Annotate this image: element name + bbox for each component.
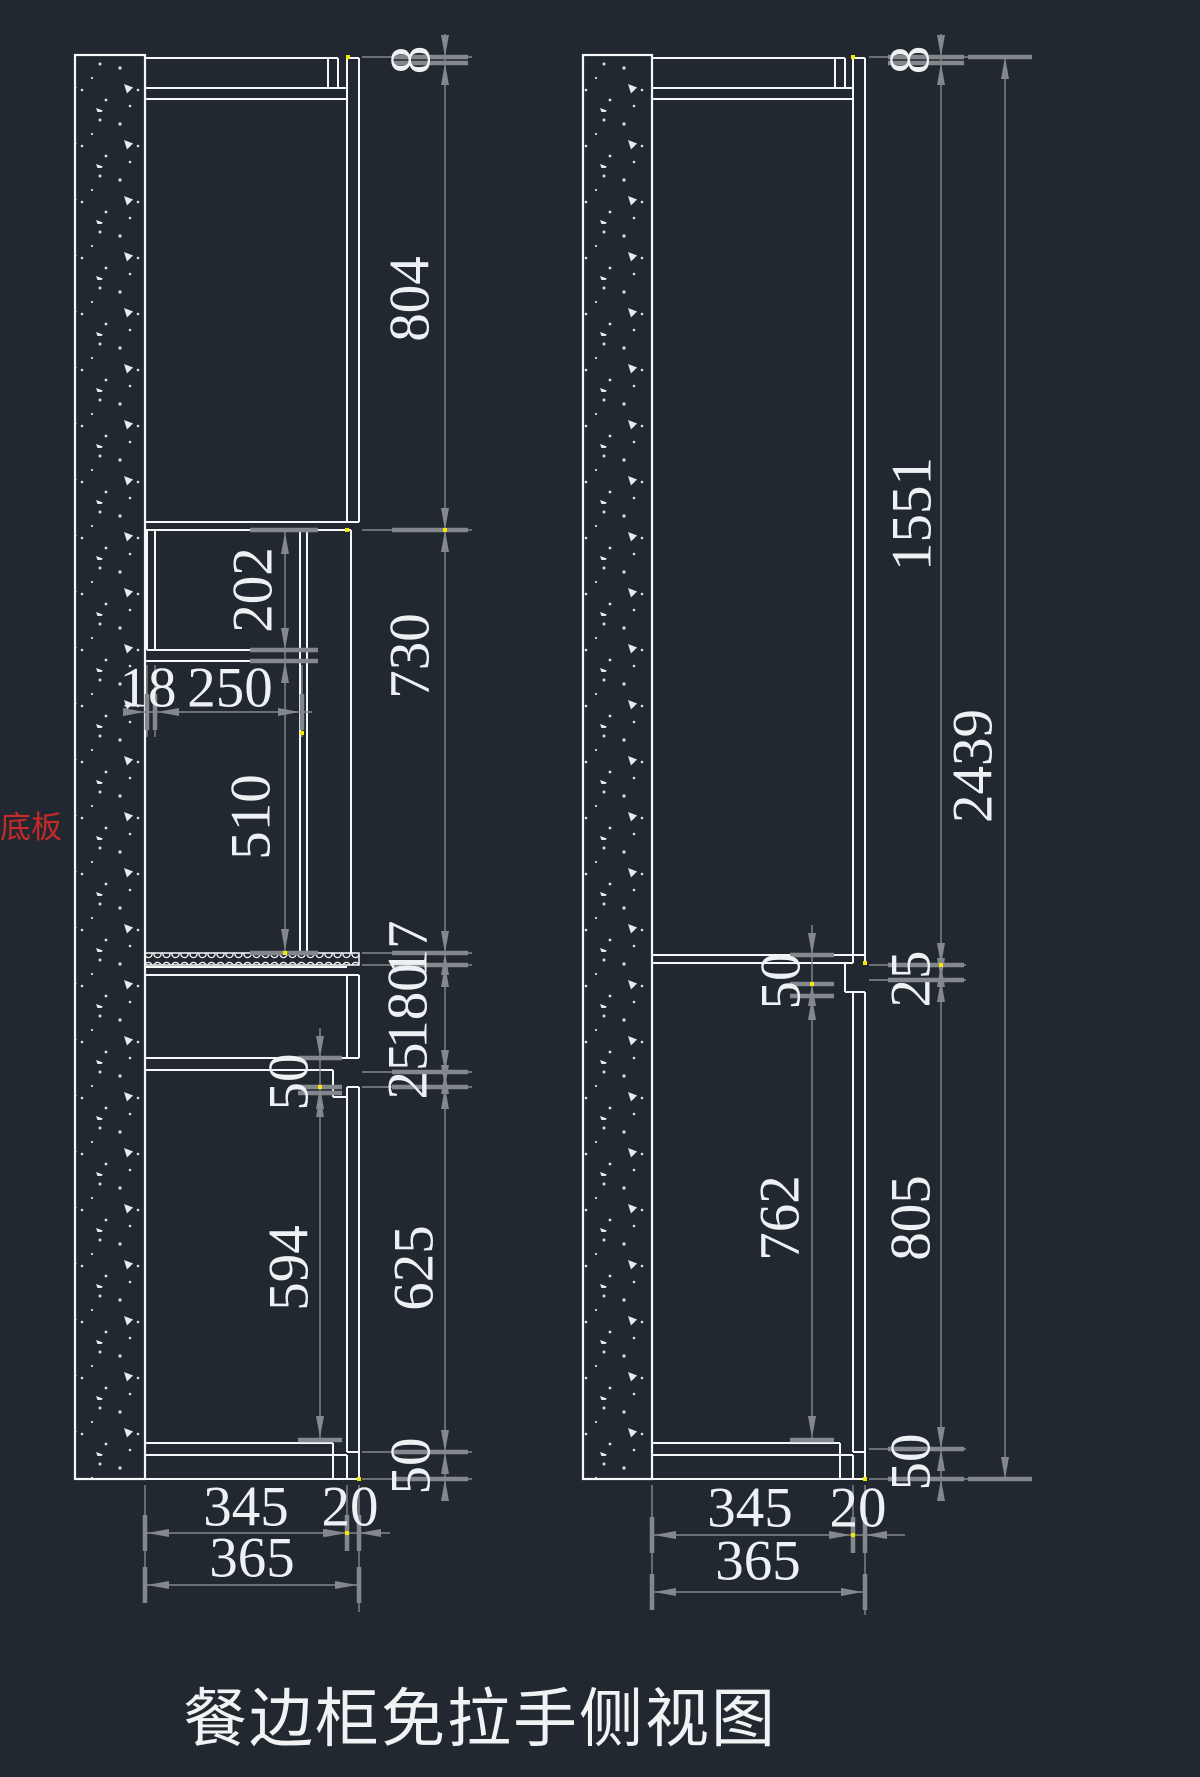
dim-niche-depth-250: 250 [187,657,273,720]
dim-left-drawer-180: 180 [377,963,440,1049]
dim-right-overall-2439: 2439 [942,709,1005,823]
bottom-panel-label: 底板 [0,802,62,847]
dim-right-total-365: 365 [715,1530,801,1593]
right-view-dimension-texts: 8 1551 25 805 50 2439 50 762 345 20 365 [707,46,1004,1593]
dim-right-top-gap: 8 [879,46,942,75]
dim-niche-wall-18: 18 [120,657,177,720]
dim-left-total-365: 365 [209,1527,295,1590]
dim-left-upper-804: 804 [379,256,442,342]
dim-right-step-25: 25 [880,951,943,1008]
dim-left-base-50: 50 [380,1438,443,1495]
dim-open-height-510: 510 [220,774,283,860]
dim-niche-height-202: 202 [222,547,285,633]
dim-left-mid-730: 730 [379,613,442,699]
left-view-dimension-texts: 8 804 730 17 180 25 625 50 202 18 250 51… [120,46,446,1590]
left-view-wall-hatch [75,55,145,1479]
dim-right-gap-50: 50 [750,953,813,1010]
dim-right-door-20: 20 [830,1477,887,1540]
dim-left-door-20: 20 [322,1476,379,1539]
cad-linework: 8 804 730 17 180 25 625 50 202 18 250 51… [0,0,1200,1777]
right-view-wall-hatch [583,55,652,1479]
dim-right-upper-1551: 1551 [881,457,944,571]
dim-left-door-594: 594 [258,1225,321,1311]
drawing-title: 餐边柜免拉手侧视图 [150,1668,810,1760]
dim-left-step-25: 25 [377,1043,440,1100]
dim-left-gap-50: 50 [258,1054,321,1111]
dim-left-top-gap: 8 [380,46,443,75]
dim-right-lower-805: 805 [880,1175,943,1261]
dim-right-base-50: 50 [880,1434,943,1491]
dim-left-lower-625: 625 [383,1225,446,1311]
dim-right-door-762: 762 [749,1175,812,1261]
cad-drawing-canvas: 8 804 730 17 180 25 625 50 202 18 250 51… [0,0,1200,1777]
wall-sections [75,55,652,1479]
